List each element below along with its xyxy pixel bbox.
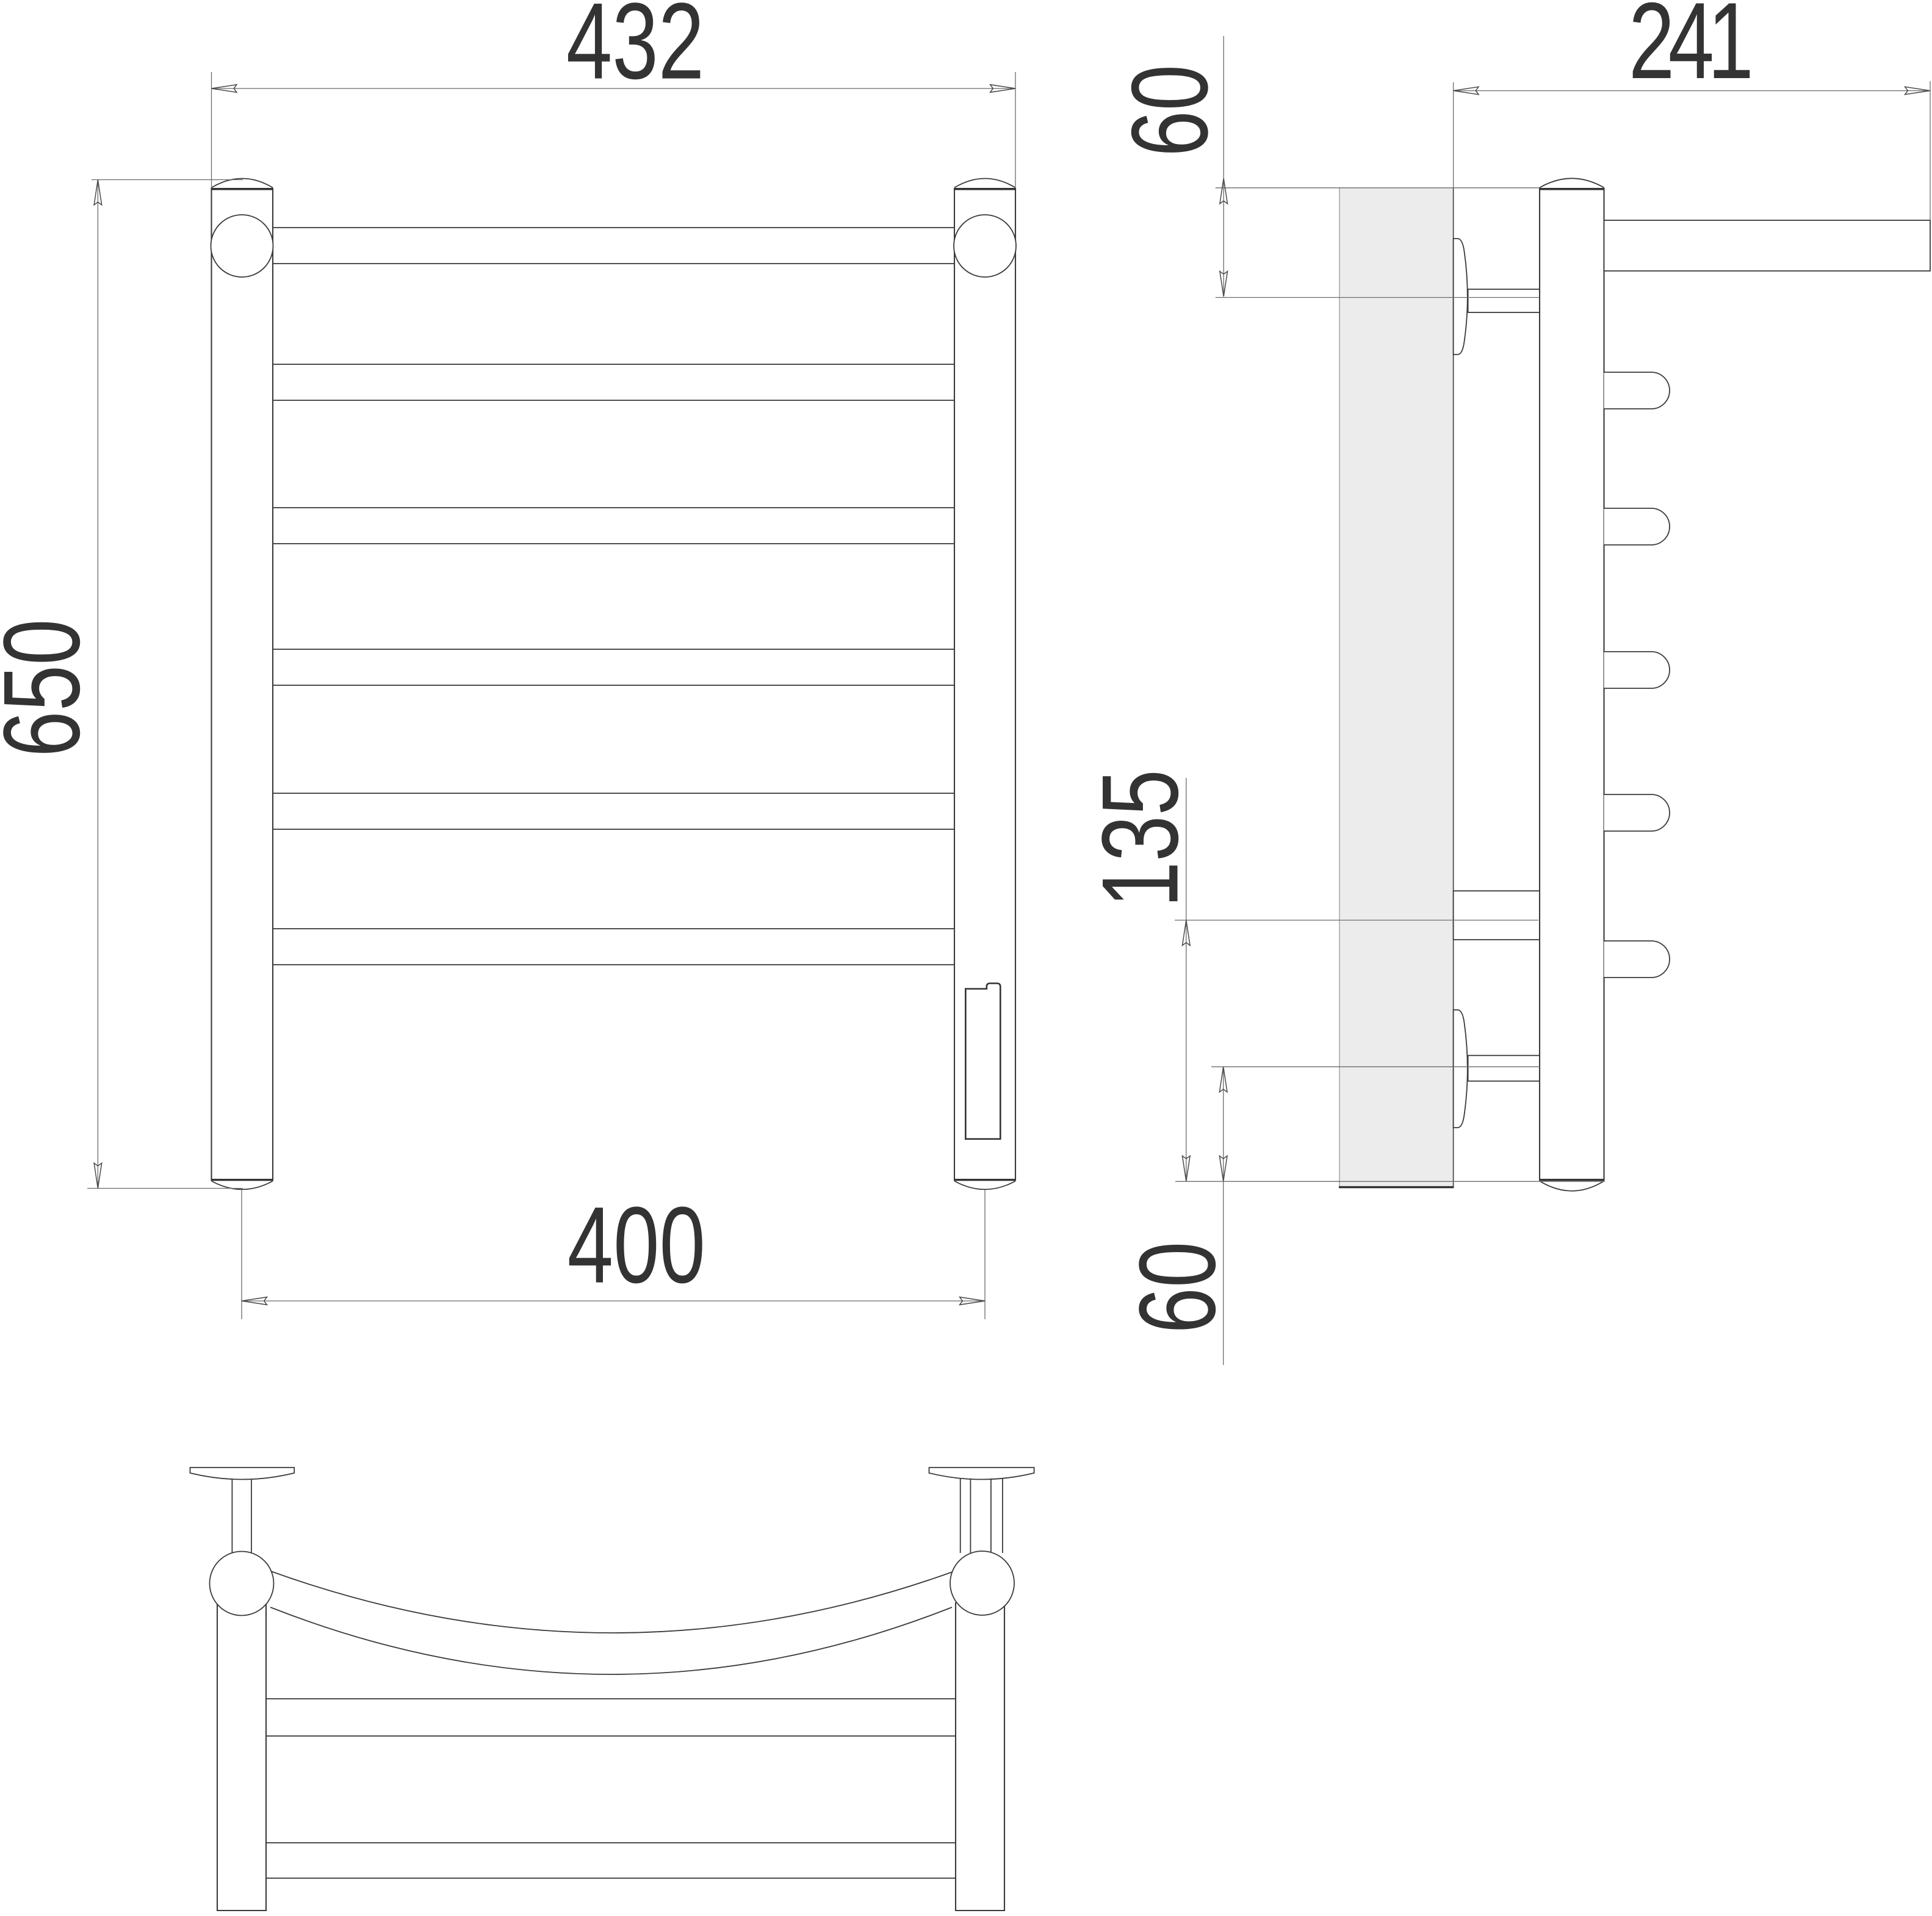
svg-text:135: 135 [1080, 769, 1201, 907]
svg-text:400: 400 [568, 1184, 705, 1306]
svg-text:241: 241 [1629, 0, 1750, 101]
svg-text:60: 60 [1117, 1242, 1238, 1334]
svg-text:432: 432 [566, 0, 704, 102]
svg-text:60: 60 [1109, 65, 1230, 157]
svg-text:650: 650 [0, 619, 103, 757]
